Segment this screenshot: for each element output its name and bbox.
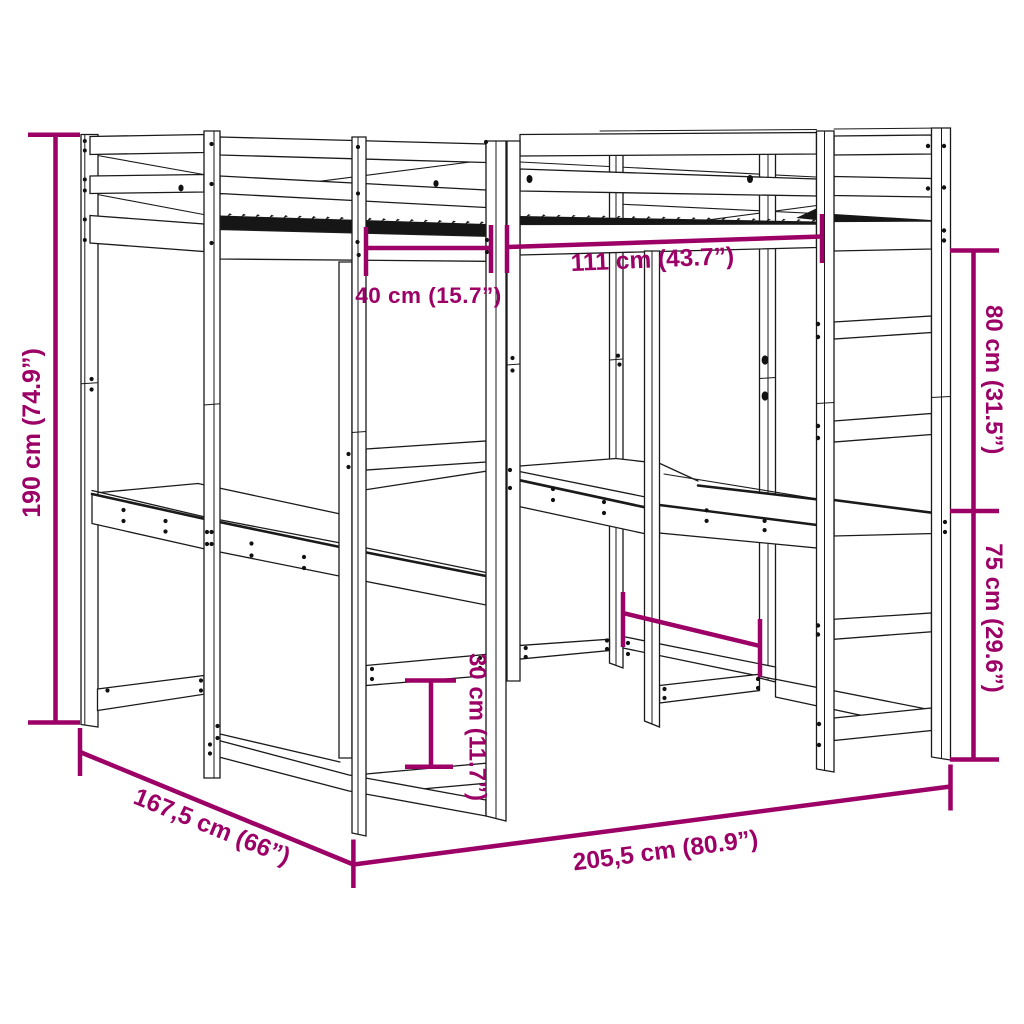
svg-text:40 cm (15.7”): 40 cm (15.7”) (355, 283, 502, 308)
svg-text:75 cm (29.6”): 75 cm (29.6”) (980, 543, 1007, 692)
svg-text:80 cm (31.5”): 80 cm (31.5”) (980, 305, 1007, 454)
svg-text:30 cm (11.7”): 30 cm (11.7”) (464, 653, 491, 801)
svg-text:190 cm (74.9”): 190 cm (74.9”) (18, 348, 46, 518)
